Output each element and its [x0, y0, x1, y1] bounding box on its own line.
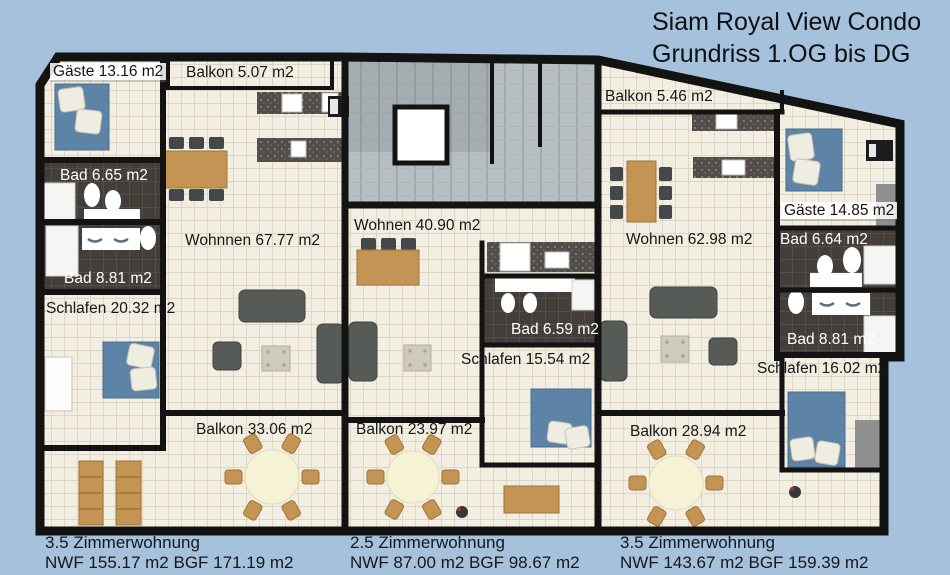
- bed-gaeste-left: [55, 84, 109, 150]
- sofa-middle: [349, 322, 377, 381]
- wardrobe-schlafen-right: [855, 420, 883, 468]
- coffee-table-left: [262, 346, 290, 371]
- summary-apartment-right: 3.5 Zimmerwohnung NWF 143.67 m2 BGF 159.…: [620, 533, 869, 572]
- sofa-right: [650, 287, 717, 318]
- sink-left: [282, 94, 302, 112]
- summary-right-areas: NWF 143.67 m2 BGF 159.39 m2: [620, 553, 869, 573]
- dining-table-left: [165, 151, 227, 188]
- room-label-bad-small-right: Bad 6.64 m2: [780, 231, 868, 248]
- room-label-balkon-top-left: Balkon 5.07 m2: [186, 64, 294, 81]
- room-label-bad-middle: Bad 6.59 m2: [511, 321, 599, 338]
- bed-gaeste-right: [786, 129, 842, 191]
- dining-set-right: [610, 161, 672, 222]
- room-label-balkon-middle: Balkon 23.97 m2: [356, 421, 472, 438]
- coffee-table-right: [661, 336, 689, 362]
- room-label-schlafen-left: Schlafen 20.32 m2: [46, 300, 175, 317]
- room-label-wohnen-right: Wohnen 62.98 m2: [626, 231, 752, 248]
- stairwell: [345, 60, 598, 205]
- cooktop-left: [291, 141, 306, 157]
- summary-middle-type: 2.5 Zimmerwohnung: [350, 533, 580, 553]
- dining-table-middle: [357, 250, 419, 285]
- room-label-gaeste-left: Gäste 13.16 m2: [50, 63, 166, 80]
- grill-middle: [456, 506, 468, 518]
- floorplan-drawing: [0, 0, 950, 575]
- sink-right: [716, 114, 737, 129]
- summary-left-areas: NWF 155.17 m2 BGF 171.19 m2: [45, 553, 294, 573]
- room-label-gaeste-right: Gäste 14.85 m2: [781, 202, 897, 219]
- summary-middle-areas: NWF 87.00 m2 BGF 98.67 m2: [350, 553, 580, 573]
- room-label-balkon-right: Balkon 28.94 m2: [630, 423, 746, 440]
- bed-schlafen-right: [788, 392, 845, 467]
- dining-table-right: [627, 161, 656, 222]
- room-label-schlafen-middle: Schlafen 15.54 m2: [461, 351, 590, 368]
- sofa-left-2: [317, 324, 344, 383]
- plan-title: Siam Royal View Condo Grundriss 1.OG bis…: [652, 6, 921, 70]
- dining-set-left: [165, 137, 227, 201]
- summary-apartment-left: 3.5 Zimmerwohnung NWF 155.17 m2 BGF 171.…: [45, 533, 294, 572]
- plan-title-line2: Grundriss 1.OG bis DG: [652, 38, 921, 70]
- armchair-right: [709, 338, 737, 365]
- summary-apartment-middle: 2.5 Zimmerwohnung NWF 87.00 m2 BGF 98.67…: [350, 533, 580, 572]
- room-label-balkon-top-right: Balkon 5.46 m2: [605, 88, 713, 105]
- plan-title-line1: Siam Royal View Condo: [652, 6, 921, 38]
- wardrobe-left: [45, 357, 72, 411]
- room-label-schlafen-right: Schlafen 16.02 m2: [757, 360, 886, 377]
- grill-right: [789, 486, 801, 498]
- sink-middle: [545, 252, 569, 268]
- fridge-middle: [500, 243, 530, 271]
- cooktop-right: [722, 160, 745, 175]
- summary-right-type: 3.5 Zimmerwohnung: [620, 533, 869, 553]
- room-label-bad-small-left: Bad 6.65 m2: [60, 167, 148, 184]
- room-label-bad-large-right: Bad 8.81 m2: [787, 331, 875, 348]
- elevator-shaft: [395, 107, 447, 163]
- sofa-right-2: [600, 321, 627, 381]
- summary-left-type: 3.5 Zimmerwohnung: [45, 533, 294, 553]
- armchair-left: [213, 342, 241, 370]
- sofa-left: [239, 290, 305, 322]
- room-label-wohnen-middle: Wohnen 40.90 m2: [354, 217, 480, 234]
- kitchen-counter-middle: [487, 242, 596, 272]
- dining-set-middle: [357, 238, 419, 285]
- tv-unit-right: [866, 140, 893, 161]
- floorplan-image: Gäste 13.16 m2 Balkon 5.07 m2 Bad 6.65 m…: [0, 0, 950, 575]
- bed-schlafen-left: [103, 342, 159, 398]
- coffee-table-middle: [404, 345, 431, 371]
- room-label-wohnen-left: Wohnnen 67.77 m2: [185, 232, 320, 249]
- bench-middle-balcony: [504, 486, 559, 513]
- bed-schlafen-middle: [531, 389, 591, 450]
- room-label-balkon-left: Balkon 33.06 m2: [196, 421, 312, 438]
- room-label-bad-large-left: Bad 8.81 m2: [64, 270, 152, 287]
